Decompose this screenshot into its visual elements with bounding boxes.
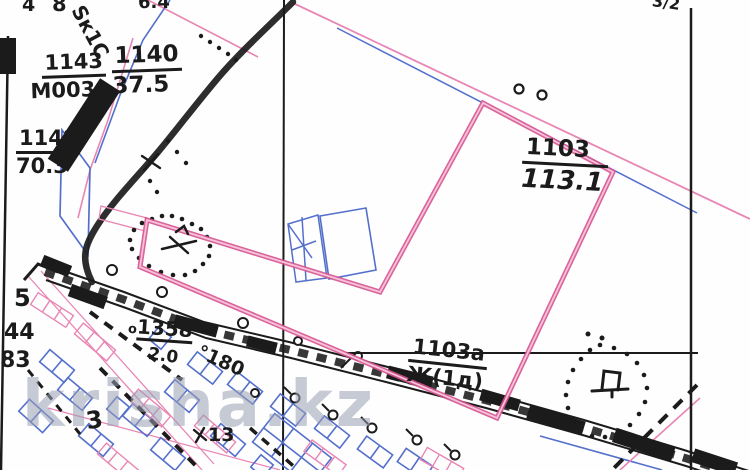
parcel-area: М003 [30,77,107,103]
watermark: krisha.kz [22,368,376,442]
parcel-label-1148: 1148 70.3 [16,128,80,177]
map-frame-left [1,36,8,470]
parcel-area: 113.1 [521,164,608,196]
land-use-symbol-west [162,226,196,253]
block-number: 83 [0,350,31,372]
parcel-number: 1140 [111,43,182,73]
house-number: 13 [208,426,234,445]
block-number: 44 [4,322,35,344]
cadastral-map: krisha.kz 4 8 Ѕк1С 6.4 3/2 1143 М003 114… [0,0,750,470]
block-number: 5 [14,286,31,310]
survey-point-label: о1358 [127,316,193,344]
parcel-label-1103: 1103 113.1 [521,136,610,196]
parcel-number: 1103 [522,136,609,168]
parcel-area: 37.5 [112,71,183,98]
parcel-number: 1148 [16,128,80,154]
survey-shapes-blue [60,130,376,282]
edge-label: 4 [22,0,35,15]
house-number: 3 [84,407,104,433]
parcel-label-1143: 1143 М003 [29,51,107,103]
blue-building-outline [320,208,376,279]
parcel-area: 70.3 [16,154,80,177]
survey-point-number: 1358 [136,316,193,344]
parcel-number: 1143 [41,51,106,79]
edge-label: 6.4 [138,0,170,12]
measure-label: 2.0 [147,346,179,367]
parcel-label-1140: 1140 37.5 [111,43,183,98]
edge-label: 8 [52,0,67,15]
building-block [0,38,16,74]
land-use-symbol-southeast [592,371,628,397]
parcel-label-1103a: 1103а Ж(1д) [406,336,489,393]
small-circles-pair [515,85,547,100]
